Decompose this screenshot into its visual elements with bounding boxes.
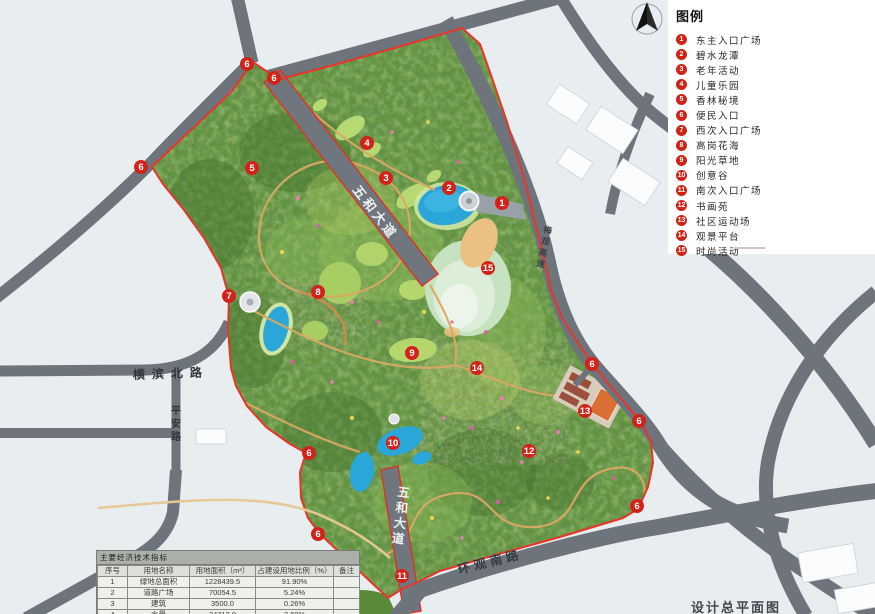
table-cell: 水景 [128, 610, 190, 614]
map-marker-13: 13 [578, 404, 592, 418]
table-cell: 34712.0 [190, 610, 256, 614]
svg-text:15: 15 [483, 263, 494, 274]
column-header: 用地面积（m²） [190, 566, 256, 577]
legend-item-label: 阳光草地 [696, 153, 740, 167]
legend-item-label: 西次入口广场 [696, 123, 762, 137]
legend-item: 5香林秘境 [676, 92, 875, 107]
legend-item: 3老年活动 [676, 62, 875, 77]
column-header: 用地名称 [128, 566, 190, 577]
legend-item: 7西次入口广场 [676, 123, 875, 138]
table-cell: 0.26% [256, 599, 334, 610]
table-cell: 2 [98, 588, 128, 599]
scale-bar [735, 247, 765, 249]
map-marker-1: 1 [495, 196, 509, 210]
legend-item: 8高岗花海 [676, 138, 875, 153]
legend-item: 1东主入口广场 [676, 32, 875, 47]
legend-item: 12书画苑 [676, 198, 875, 213]
map-marker-6: 6 [267, 71, 281, 85]
map-marker-15: 15 [481, 261, 495, 275]
table-row: 1绿地总面积1228439.591.90% [98, 577, 360, 588]
legend-item: 9阳光草地 [676, 153, 875, 168]
legend-item: 15时尚活动 [676, 243, 875, 258]
plan-screenshot: 五和大道五和大道横滨北路平安路环观南路梅观高速 6665432115789146… [0, 0, 875, 614]
legend-item-label: 儿童乐园 [696, 78, 740, 92]
map-marker-10: 10 [386, 436, 400, 450]
svg-text:9: 9 [409, 348, 414, 359]
legend-marker-icon: 12 [676, 200, 687, 211]
map-marker-12: 12 [522, 444, 536, 458]
table-row: 4水景34712.02.60% [98, 610, 360, 614]
legend-item: 10创意谷 [676, 168, 875, 183]
table-cell: 1228439.5 [190, 577, 256, 588]
legend-marker-icon: 11 [676, 185, 687, 196]
map-marker-6: 6 [302, 446, 316, 460]
map-marker-5: 5 [245, 161, 259, 175]
legend-item-label: 创意谷 [696, 168, 729, 182]
table-cell: 91.90% [256, 577, 334, 588]
legend-list: 1东主入口广场2碧水龙潭3老年活动4儿童乐园5香林秘境6便民入口7西次入口广场8… [676, 32, 875, 258]
legend-marker-icon: 2 [676, 49, 687, 60]
table-cell: 3 [98, 599, 128, 610]
svg-text:2: 2 [446, 183, 451, 194]
svg-text:14: 14 [472, 363, 483, 374]
legend-marker-icon: 13 [676, 215, 687, 226]
table-cell: 1 [98, 577, 128, 588]
svg-text:3: 3 [383, 173, 388, 184]
table-cell [334, 599, 360, 610]
legend-marker-icon: 10 [676, 170, 687, 181]
legend-item: 11南次入口广场 [676, 183, 875, 198]
legend-item-label: 社区运动场 [696, 214, 751, 228]
table-cell: 70054.5 [190, 588, 256, 599]
svg-text:6: 6 [589, 359, 594, 370]
table-cell: 建筑 [128, 599, 190, 610]
road-label: 平安路 [171, 405, 183, 443]
legend-marker-icon: 1 [676, 34, 687, 45]
legend-item: 6便民入口 [676, 107, 875, 122]
svg-text:6: 6 [636, 416, 641, 427]
svg-text:12: 12 [524, 446, 535, 457]
legend-panel: 图例 1东主入口广场2碧水龙潭3老年活动4儿童乐园5香林秘境6便民入口7西次入口… [668, 0, 875, 254]
column-header: 序号 [98, 566, 128, 577]
legend-item-label: 高岗花海 [696, 138, 740, 152]
legend-marker-icon: 4 [676, 79, 687, 90]
legend-item: 2碧水龙潭 [676, 47, 875, 62]
legend-item: 4儿童乐园 [676, 77, 875, 92]
legend-item-label: 书画苑 [696, 199, 729, 213]
table-cell: 3500.0 [190, 599, 256, 610]
svg-text:6: 6 [271, 73, 276, 84]
legend-marker-icon: 15 [676, 245, 687, 256]
column-header: 备注 [334, 566, 360, 577]
legend-item-label: 东主入口广场 [696, 33, 762, 47]
legend-title: 图例 [676, 6, 875, 25]
legend-item: 13社区运动场 [676, 213, 875, 228]
map-marker-14: 14 [470, 361, 484, 375]
svg-text:5: 5 [249, 163, 255, 174]
map-marker-6: 6 [630, 499, 644, 513]
svg-text:6: 6 [634, 501, 639, 512]
map-marker-6: 6 [585, 357, 599, 371]
svg-text:8: 8 [315, 287, 320, 298]
plan-caption: 设计总平面图 [691, 597, 781, 614]
table-cell [334, 588, 360, 599]
legend-item-label: 观景平台 [696, 229, 740, 243]
svg-text:11: 11 [397, 571, 408, 582]
table-cell: 5.24% [256, 588, 334, 599]
map-marker-3: 3 [379, 171, 393, 185]
map-marker-2: 2 [442, 181, 456, 195]
map-marker-8: 8 [311, 285, 325, 299]
table-cell [334, 577, 360, 588]
svg-text:7: 7 [226, 291, 231, 302]
road-label: 横滨北路 [133, 364, 209, 382]
table-cell: 2.60% [256, 610, 334, 614]
indicator-table-header: 序号用地名称用地面积（m²）占建设用地比例（%）备注 [98, 566, 360, 577]
map-marker-6: 6 [240, 57, 254, 71]
map-marker-9: 9 [405, 346, 419, 360]
legend-item-label: 便民入口 [696, 108, 740, 122]
legend-item-label: 香林秘境 [696, 93, 740, 107]
indicator-table: 主要经济技术指标 序号用地名称用地面积（m²）占建设用地比例（%）备注 1绿地总… [96, 550, 360, 614]
svg-text:6: 6 [138, 162, 143, 173]
legend-item: 14观景平台 [676, 228, 875, 243]
svg-text:13: 13 [580, 406, 591, 417]
svg-text:1: 1 [499, 198, 505, 209]
table-cell [334, 610, 360, 614]
table-cell: 绿地总面积 [128, 577, 190, 588]
map-marker-6: 6 [311, 527, 325, 541]
legend-marker-icon: 6 [676, 110, 687, 121]
legend-item-label: 时尚活动 [696, 244, 740, 258]
legend-marker-icon: 9 [676, 155, 687, 166]
legend-marker-icon: 3 [676, 64, 687, 75]
indicator-table-title: 主要经济技术指标 [97, 551, 359, 565]
map-marker-11: 11 [395, 569, 409, 583]
table-cell: 4 [98, 610, 128, 614]
map-marker-6: 6 [134, 160, 148, 174]
map-marker-4: 4 [360, 136, 374, 150]
flower-field [420, 340, 570, 465]
map-marker-6: 6 [632, 414, 646, 428]
table-row: 2道路广场70054.55.24% [98, 588, 360, 599]
table-cell: 道路广场 [128, 588, 190, 599]
svg-text:6: 6 [306, 448, 311, 459]
legend-item-label: 碧水龙潭 [696, 48, 740, 62]
svg-text:6: 6 [244, 59, 249, 70]
table-row: 3建筑3500.00.26% [98, 599, 360, 610]
svg-text:6: 6 [315, 529, 320, 540]
legend-marker-icon: 14 [676, 230, 687, 241]
legend-marker-icon: 7 [676, 125, 687, 136]
legend-item-label: 南次入口广场 [696, 183, 762, 197]
legend-marker-icon: 5 [676, 94, 687, 105]
column-header: 占建设用地比例（%） [256, 566, 334, 577]
svg-text:10: 10 [388, 438, 399, 449]
map-marker-7: 7 [222, 289, 236, 303]
legend-marker-icon: 8 [676, 140, 687, 151]
svg-text:4: 4 [364, 138, 370, 149]
legend-item-label: 老年活动 [696, 63, 740, 77]
